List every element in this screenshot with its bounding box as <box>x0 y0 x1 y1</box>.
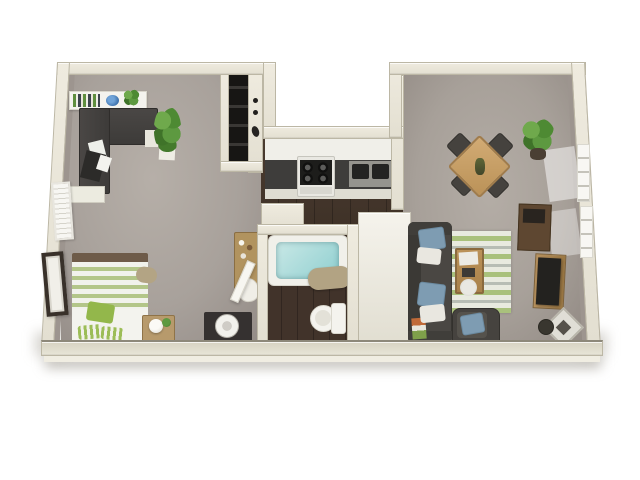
entry-closet <box>358 212 411 345</box>
tv <box>536 257 561 305</box>
round-stool <box>538 319 554 335</box>
table-lamp <box>149 319 163 333</box>
coffee-table-item <box>462 268 475 277</box>
bed-pillow-striped-2 <box>100 326 123 341</box>
sofa-pillow-white-1 <box>416 247 442 265</box>
sink-basin-right <box>372 164 389 179</box>
wall-bottom-face <box>44 356 600 362</box>
shelf-bowl <box>106 95 119 106</box>
coffee-table-tray <box>459 251 479 265</box>
shelf-plant <box>123 89 140 106</box>
nightstand-plant <box>162 318 171 327</box>
closet-knob-2 <box>253 110 258 115</box>
window-dining <box>577 144 590 202</box>
wall-kitchen-top <box>263 126 404 139</box>
closet-wall-left <box>220 68 229 171</box>
floor-plant <box>154 107 181 152</box>
stove-cooktop <box>300 160 332 185</box>
wall-top-left <box>57 62 276 75</box>
round-side-table <box>215 314 239 338</box>
coffee-table-plate <box>460 279 477 296</box>
toilet-seat <box>315 310 331 326</box>
toilet-tank <box>331 303 346 334</box>
floor-plan <box>57 62 585 358</box>
oven-handle <box>300 187 332 194</box>
table-centerpiece <box>475 158 485 175</box>
shelf-books <box>73 94 100 107</box>
bathroom-wall-right <box>347 224 359 347</box>
closet-wall-right <box>248 68 263 173</box>
sink-basin-left <box>352 164 369 179</box>
window-blinds-bedroom <box>51 181 74 240</box>
closet-knob-1 <box>253 98 258 103</box>
window-living <box>580 206 593 258</box>
vanity-items <box>237 238 255 262</box>
desk-cabinet <box>68 186 105 203</box>
dining-plant-pot <box>530 148 546 160</box>
wall-top-right <box>389 62 586 75</box>
armchair-pillow <box>459 312 485 336</box>
closet-wall-bottom <box>220 161 263 172</box>
sofa-pillow-white-2 <box>419 304 446 324</box>
bed-pillow-green <box>86 301 116 324</box>
towel <box>307 265 352 291</box>
bathroom-wall-left <box>257 224 268 347</box>
bathroom-wall-top <box>257 224 359 235</box>
corner-desk-item <box>523 209 545 224</box>
floor-plan-image <box>0 0 640 480</box>
bed-pillow-striped-1 <box>77 324 102 340</box>
dining-plant <box>521 118 555 152</box>
wall-bottom <box>41 340 603 356</box>
